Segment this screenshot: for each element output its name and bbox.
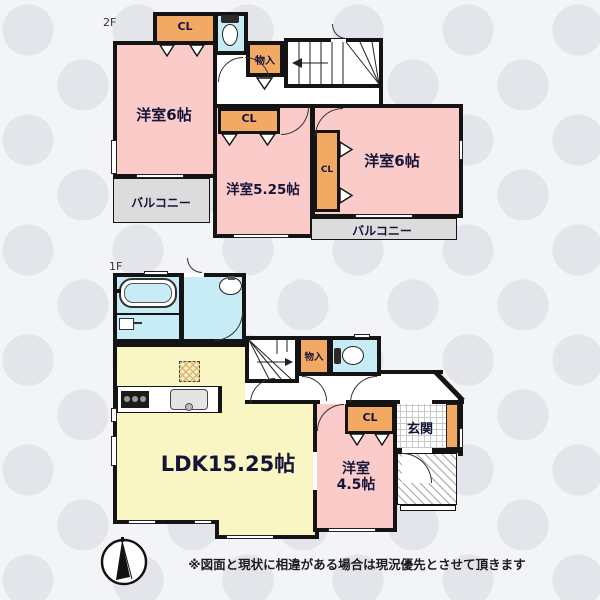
closet-hanger-icon — [160, 45, 210, 58]
storage-2f-label: 物入 — [255, 52, 275, 67]
window-marker — [128, 520, 156, 524]
compass-icon — [98, 536, 150, 588]
bathtub-icon — [119, 278, 177, 308]
washstand-faucet-icon — [134, 322, 142, 324]
bath-faucet-icon — [113, 289, 121, 293]
ldk-label: LDK15.25帖 — [161, 448, 296, 478]
toilet-icon — [342, 346, 364, 365]
room-east6-2f-label: 洋室6帖 — [364, 150, 419, 171]
wall-segment — [113, 343, 249, 347]
door-swing-icon — [332, 24, 346, 39]
porch-step — [400, 505, 456, 511]
room-west45-label-2: 4.5帖 — [337, 474, 376, 494]
closet-1f-label: CL — [362, 411, 377, 424]
balcony-right-label: バルコニー — [352, 222, 412, 239]
window-marker — [459, 140, 463, 160]
stairs-arrow-icon — [285, 358, 293, 366]
shoe-cabinet — [446, 404, 458, 448]
door-swing-icon — [187, 258, 202, 273]
toilet-tank-icon — [334, 348, 341, 364]
window-marker — [328, 528, 376, 532]
closet-hanger-icon — [350, 434, 392, 447]
sliding-door-opening — [313, 452, 317, 490]
window-marker — [194, 520, 212, 524]
wall-segment — [117, 313, 181, 315]
floor-storage-hatch — [179, 361, 200, 382]
balcony-left-label: バルコニー — [131, 194, 191, 211]
bathtub-basin — [124, 283, 172, 303]
window-marker — [354, 334, 370, 338]
door-mark-icon — [257, 78, 273, 90]
floor2-label: 2F — [103, 16, 116, 29]
window-marker — [355, 214, 413, 218]
closet-a-2f-label: CL — [177, 20, 192, 33]
closet-c-2f-label: CL — [321, 165, 333, 175]
room-center-2f-label: 洋室5.25帖 — [226, 178, 300, 198]
floor1-label: 1F — [109, 260, 122, 273]
door-opening — [184, 273, 204, 277]
stairs-treads-icon — [288, 42, 379, 84]
wall-segment — [113, 343, 117, 524]
window-marker — [144, 271, 168, 275]
window-marker — [111, 140, 117, 174]
window-marker — [226, 535, 274, 539]
closet-b-2f-label: CL — [241, 112, 256, 125]
storage-1f-label: 物入 — [304, 349, 323, 363]
window-marker — [111, 436, 117, 466]
front-door-marker — [459, 428, 463, 448]
closet-hanger-icon — [340, 142, 354, 208]
sink-faucet-icon — [185, 403, 193, 411]
vanity-tap-icon — [228, 276, 235, 280]
wall-segment — [379, 86, 383, 108]
wall-segment — [218, 386, 222, 413]
window-marker — [136, 174, 184, 178]
toilet-tank-icon — [221, 15, 239, 23]
stove-icon — [121, 391, 149, 408]
stairs-treads-icon — [249, 340, 295, 379]
washstand-icon — [119, 318, 134, 330]
stairs-arrow-icon — [292, 58, 302, 68]
room-west6-2f-label: 洋室6帖 — [136, 104, 191, 125]
door-opening — [400, 400, 432, 404]
entrance-label: 玄関 — [407, 418, 433, 437]
window-marker — [233, 234, 289, 238]
floor-plan-canvas: 2F — [0, 0, 600, 600]
closet-hanger-icon — [222, 134, 278, 147]
disclaimer-text: ※図面と現状に相違がある場合は現況優先とさせて頂きます — [188, 554, 525, 573]
